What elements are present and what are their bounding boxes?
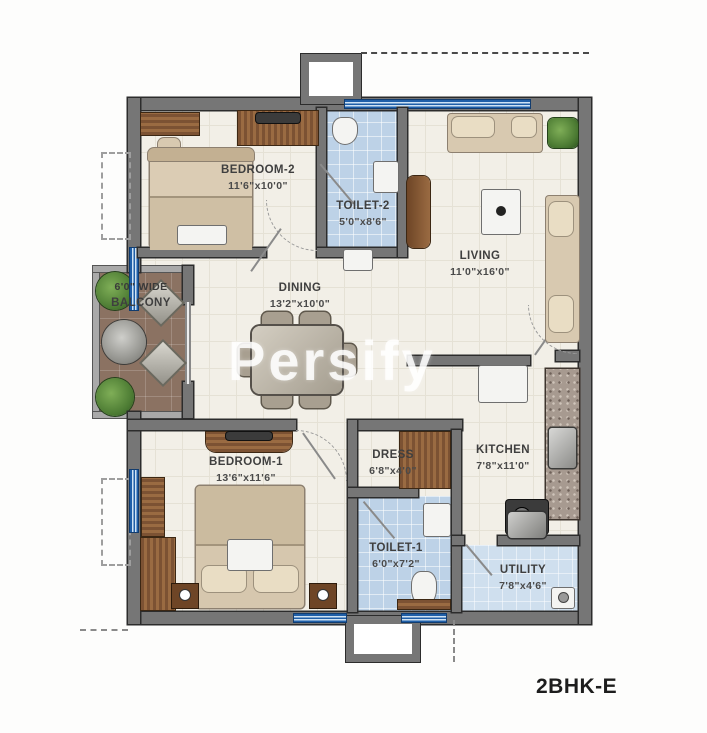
duct-bottom <box>346 616 420 662</box>
bedroom1-nightstand-dot <box>180 590 190 600</box>
room-dims: 11'0"x16'0" <box>420 265 540 280</box>
toilet2-wc-icon <box>333 118 357 144</box>
balcony-sliding-door <box>185 302 191 384</box>
room-name: BALCONY <box>100 295 182 312</box>
room-dims: 13'6"x11'6" <box>156 471 336 486</box>
room-name: BEDROOM-1 <box>156 454 336 471</box>
toilet2-shower <box>374 162 398 192</box>
window-toilet1-bottom <box>402 614 446 622</box>
balcony-door-stub-bottom <box>183 382 193 418</box>
wall-toilet2-east <box>398 108 407 257</box>
room-dims: 11'6"x10'0" <box>168 179 348 194</box>
dashed-line-top <box>361 52 589 54</box>
living-sofa-right-cushion <box>549 202 573 236</box>
bedroom2-tv-unit <box>256 113 300 123</box>
bedroom2-bed-headboard <box>148 148 254 161</box>
balcony-door-stub-top <box>183 266 193 304</box>
balcony-table <box>102 320 146 364</box>
room-name: LIVING <box>420 248 540 265</box>
bedroom2-bench <box>178 226 226 244</box>
living-table-decor <box>496 206 506 216</box>
room-dims: 5'0"x8'6" <box>313 215 413 230</box>
bedroom1-label: BEDROOM-1 13'6"x11'6" <box>156 454 336 486</box>
balcony-label: 6'0" WIDE BALCONY <box>100 280 182 312</box>
bedroom2-desk <box>141 113 199 135</box>
bedroom2-label: BEDROOM-2 11'6"x10'0" <box>168 162 348 194</box>
toilet1-washbasin <box>424 504 450 536</box>
bedroom1-bed-blanket <box>196 486 304 546</box>
dashed-box-left-upper <box>101 152 131 240</box>
dining-label: DINING 13'2"x10'0" <box>240 280 360 312</box>
living-label: LIVING 11'0"x16'0" <box>420 248 540 280</box>
room-dims: 13'2"x10'0" <box>240 297 360 312</box>
dress-label: DRESS 6'8"x4'0" <box>348 447 438 479</box>
kitchen-fridge <box>479 366 527 402</box>
room-name: KITCHEN <box>448 442 558 459</box>
room-dims: 6'8"x4'0" <box>348 464 438 479</box>
balcony-width: 6'0" WIDE <box>100 280 182 295</box>
window-bedroom1-left <box>130 470 138 532</box>
toilet2-washbasin <box>344 250 372 270</box>
wall-right <box>579 98 591 624</box>
kitchen-label: KITCHEN 7'8"x11'0" <box>448 442 558 474</box>
wall-utility-north-left <box>452 536 464 545</box>
living-sofa-right-cushion <box>549 296 573 332</box>
dashed-line-bottom-left <box>80 629 128 631</box>
utility-sink <box>508 512 546 538</box>
wall-bedroom1-north <box>128 420 296 430</box>
bedroom1-desk <box>142 478 164 536</box>
toilet1-label: TOILET-1 6'0"x7'2" <box>346 540 446 572</box>
bedroom1-nightstand-dot <box>318 590 328 600</box>
living-sofa-top-cushions <box>452 117 494 137</box>
room-name: BEDROOM-2 <box>168 162 348 179</box>
wall-dress-north <box>348 420 462 430</box>
bedroom1-tv <box>226 432 272 440</box>
utility-washer-dot <box>559 593 568 602</box>
living-sofa-top-cushions <box>512 117 536 137</box>
dashed-line-bottom-right <box>453 620 455 662</box>
utility-label: UTILITY 7'8"x4'6" <box>470 562 576 594</box>
room-name: DRESS <box>348 447 438 464</box>
floor-plan-canvas: BEDROOM-2 11'6"x10'0" TOILET-2 5'0"x8'6"… <box>0 0 707 733</box>
plant-icon <box>96 378 134 416</box>
room-dims: 7'8"x4'6" <box>470 579 576 594</box>
bedroom1-wardrobe <box>141 538 175 610</box>
toilet1-shelf <box>398 600 450 609</box>
duct-top <box>301 54 361 104</box>
dashed-box-left-lower <box>101 478 131 566</box>
room-name: UTILITY <box>470 562 576 579</box>
wall-dress-toilet1 <box>348 488 418 497</box>
living-plant-icon <box>548 118 578 148</box>
room-name: TOILET-2 <box>313 198 413 215</box>
room-dims: 7'8"x11'0" <box>448 459 558 474</box>
bedroom1-runner <box>228 540 272 570</box>
room-dims: 6'0"x7'2" <box>346 557 446 572</box>
room-name: DINING <box>240 280 360 297</box>
toilet2-label: TOILET-2 5'0"x8'6" <box>313 198 413 230</box>
plan-title: 2BHK-E <box>536 675 617 699</box>
window-bedroom1-bottom <box>294 614 346 622</box>
window-living-top <box>345 100 530 108</box>
watermark: Persify <box>228 328 436 393</box>
balcony-wall-top <box>93 266 190 272</box>
room-name: TOILET-1 <box>346 540 446 557</box>
